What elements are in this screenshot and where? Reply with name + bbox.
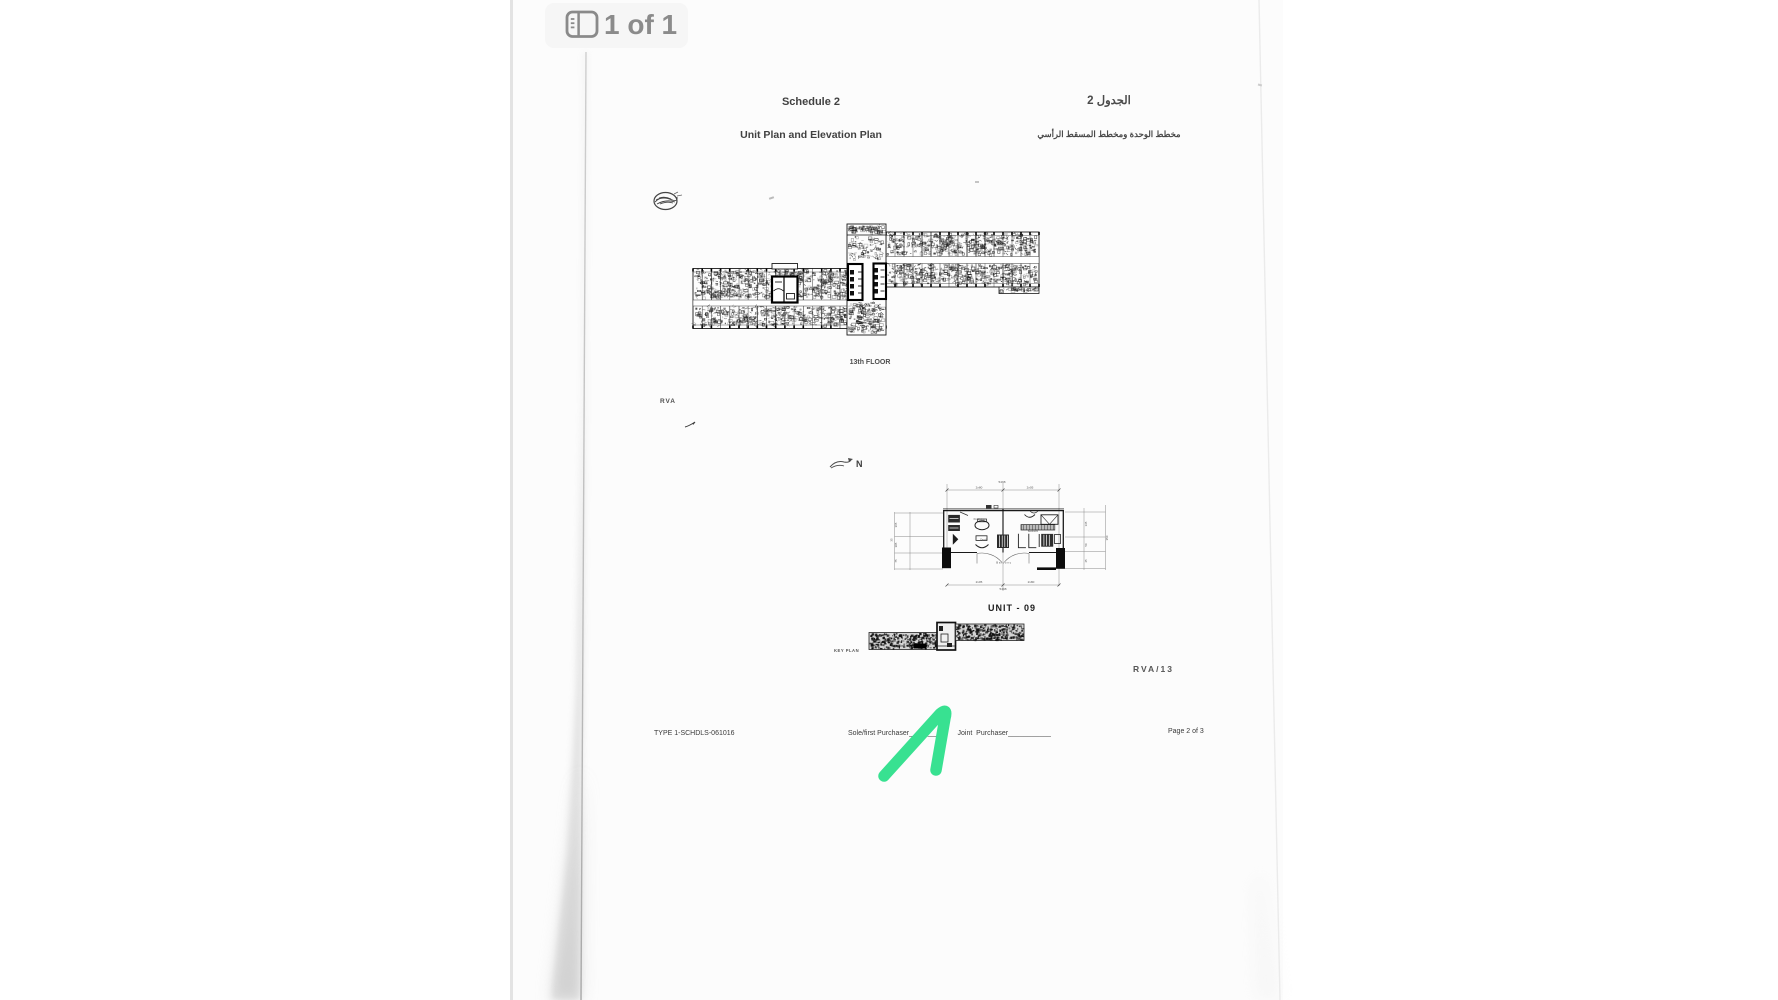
svg-text:45: 45 — [1084, 559, 1088, 563]
svg-text:59: 59 — [1084, 543, 1088, 547]
svg-text:2x80: 2x80 — [976, 486, 983, 490]
svg-text:Balcony: Balcony — [996, 561, 1012, 565]
svg-text:2x05: 2x05 — [1027, 486, 1034, 490]
svg-text:35: 35 — [890, 538, 894, 542]
svg-text:5498: 5498 — [999, 480, 1006, 484]
svg-text:365: 365 — [894, 522, 898, 527]
svg-text:5498: 5498 — [1000, 587, 1007, 591]
svg-text:N: N — [856, 459, 863, 469]
svg-text:75: 75 — [894, 559, 898, 563]
svg-text:305: 305 — [894, 542, 898, 547]
svg-text:135: 135 — [1084, 521, 1088, 526]
svg-text:2x80: 2x80 — [1028, 580, 1035, 584]
svg-text:Family: Family — [980, 539, 988, 542]
svg-text:350: 350 — [1105, 535, 1109, 540]
svg-text:Bedroom: Bedroom — [1028, 530, 1038, 533]
svg-text:2x05: 2x05 — [976, 580, 983, 584]
svg-text:Kit./Living: Kit./Living — [974, 518, 985, 521]
